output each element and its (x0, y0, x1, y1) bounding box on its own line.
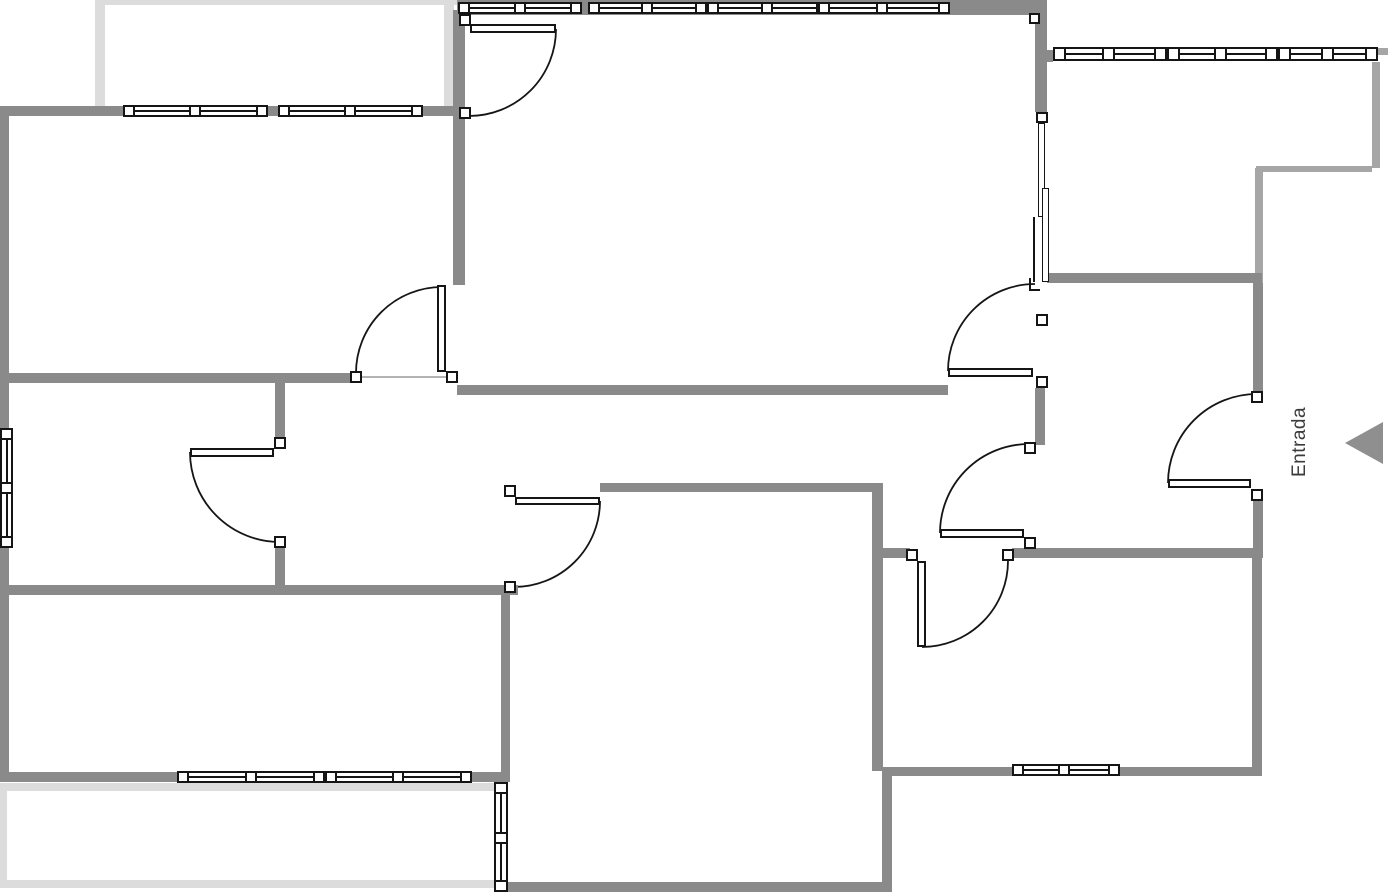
window-post (494, 880, 508, 892)
wall-segment-light (1255, 168, 1263, 283)
wall-segment (508, 882, 882, 892)
terrace-edge (95, 0, 105, 106)
wall-segment (457, 385, 948, 395)
window-post (1029, 13, 1040, 24)
window-post (1102, 47, 1115, 61)
window-post (313, 771, 325, 783)
wall-segment (1253, 500, 1263, 558)
window-post (641, 2, 653, 14)
door-arcs-overlay (0, 0, 1395, 892)
window-post (1058, 764, 1070, 776)
window-post (494, 832, 508, 844)
window-post (189, 105, 201, 117)
window-post (1278, 47, 1291, 61)
window-post (1214, 47, 1227, 61)
wall-segment (1035, 388, 1045, 445)
door-frame-post (350, 371, 362, 383)
window-post (458, 2, 470, 14)
window-post (1036, 112, 1048, 123)
door-frame-post (1024, 537, 1036, 549)
wall-segment (1253, 283, 1263, 392)
window-post (818, 2, 830, 14)
wall-segment (882, 767, 892, 892)
door-swing-arc (356, 287, 442, 373)
window-post (0, 536, 13, 548)
window-post (1053, 47, 1066, 61)
door-frame-post (1251, 391, 1263, 403)
window-post (177, 771, 189, 783)
door-bottomcenter-room[interactable] (515, 497, 600, 505)
window-post (245, 771, 257, 783)
window-post (494, 782, 508, 794)
door-frame-post (1251, 489, 1263, 501)
window-post (1108, 764, 1120, 776)
window-post (514, 2, 526, 14)
entrance-arrow-icon (1345, 422, 1383, 464)
door-frame-post (274, 536, 286, 548)
wall-segment (275, 548, 285, 585)
door-bottomright-room[interactable] (917, 561, 926, 647)
window-post (1167, 47, 1180, 61)
door-livingroom-bottom[interactable] (948, 368, 1033, 377)
wall-segment (501, 592, 510, 777)
door-swing-arc (948, 284, 1035, 371)
window-post (707, 2, 719, 14)
door-swing-arc (469, 29, 556, 116)
terrace-edge (0, 783, 7, 888)
sliding-window-bracket (1029, 289, 1040, 291)
door-swing-arc (514, 501, 600, 587)
door-hall-entrance[interactable] (940, 529, 1024, 538)
door-livingroom-top[interactable] (470, 24, 556, 33)
window-post (1321, 47, 1334, 61)
door-hall-topleft[interactable] (437, 285, 446, 372)
door-swing-arc (190, 452, 280, 542)
terrace-edge (95, 0, 458, 5)
wall-segment (1252, 558, 1262, 776)
window-post (570, 2, 582, 14)
door-frame-post (1002, 549, 1014, 561)
door-swing-arc (922, 561, 1008, 647)
door-frame-post (1024, 442, 1036, 454)
window-post (344, 105, 356, 117)
window-post (278, 105, 290, 117)
window-post (1012, 764, 1024, 776)
window-post (761, 2, 773, 14)
door-swing-arc (1168, 394, 1257, 483)
wall-segment-light (1378, 48, 1388, 55)
wall-segment (1012, 548, 1256, 558)
door-frame-post (274, 437, 286, 449)
window-post (938, 2, 950, 14)
wall-segment (0, 585, 518, 595)
floorplan-canvas: Entrada (0, 0, 1395, 892)
door-frame-post (446, 371, 458, 383)
window-post (256, 105, 268, 117)
terrace-edge (0, 783, 507, 791)
entrance-label: Entrada (1287, 397, 1313, 487)
window-post (876, 2, 888, 14)
door-frame-post (1036, 376, 1048, 388)
door-swing-arc (940, 444, 1029, 533)
door-frame-post (504, 485, 516, 497)
wall-segment-light (1256, 166, 1372, 172)
door-frame-post (1036, 314, 1048, 326)
window-post (392, 771, 404, 783)
window-post (695, 2, 707, 14)
door-entrada[interactable] (1168, 479, 1251, 488)
sliding-window-rail (1033, 217, 1035, 282)
window-post (325, 771, 337, 783)
window-post (411, 105, 423, 117)
wall-segment (275, 373, 285, 438)
terrace-edge (0, 880, 507, 888)
sliding-window-right-wall[interactable] (1042, 188, 1049, 282)
wall-segment (0, 373, 356, 383)
wall-segment-light (1372, 62, 1380, 168)
window-post (1154, 47, 1167, 61)
door-frame-post (906, 549, 918, 561)
window-post (460, 771, 472, 783)
wall-segment (453, 10, 465, 285)
door-frame-post (459, 107, 471, 119)
window-post (0, 428, 13, 440)
wall-segment (0, 548, 9, 772)
wall-segment (0, 106, 9, 428)
door-frame-post (504, 581, 516, 593)
window-post (1265, 47, 1278, 61)
window-post (588, 2, 600, 14)
window-post (123, 105, 135, 117)
door-midleft-room[interactable] (190, 448, 274, 457)
window-post (0, 482, 13, 494)
wall-segment (600, 483, 882, 492)
window-post (1365, 47, 1378, 61)
wall-segment (1047, 273, 1262, 283)
wall-segment (872, 483, 883, 771)
